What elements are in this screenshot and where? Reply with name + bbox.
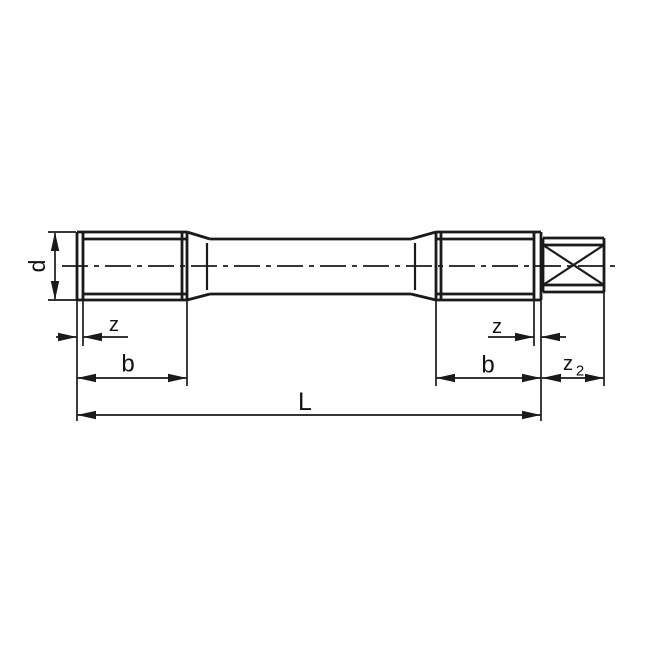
dimension-arrowhead — [542, 374, 561, 382]
dimension-arrowhead — [522, 374, 541, 382]
dim-label-d: d — [24, 260, 50, 273]
dim-label-b-right: b — [481, 352, 494, 379]
dim-label-b-left: b — [121, 351, 134, 378]
part-edge-line — [187, 232, 210, 239]
dim-label-z2: z — [563, 353, 573, 375]
dimension-arrowhead — [51, 232, 59, 251]
dimension-arrowhead — [58, 333, 77, 341]
dimension-arrowhead — [541, 333, 560, 341]
dimension-arrowhead — [77, 374, 96, 382]
stud-technical-drawing: dzbLzbz2 — [0, 0, 647, 647]
dimension-arrowhead — [77, 411, 96, 419]
dim-label-z2-subscript: 2 — [576, 363, 584, 380]
part-edge-line — [411, 232, 436, 239]
dim-label-z-right: z — [492, 316, 502, 338]
dimension-arrowhead — [515, 333, 534, 341]
drawing-canvas: dzbLzbz2 — [0, 0, 647, 647]
part-edge-line — [187, 294, 210, 300]
dimension-arrowhead — [51, 281, 59, 300]
dim-label-L: L — [298, 388, 312, 416]
dimension-arrowhead — [522, 411, 541, 419]
dimension-arrowhead — [83, 333, 102, 341]
dimension-arrowhead — [585, 374, 604, 382]
part-edge-line — [411, 294, 436, 300]
dimension-arrowhead — [436, 374, 455, 382]
dimension-arrowhead — [168, 374, 187, 382]
dim-label-z-left: z — [109, 314, 119, 336]
